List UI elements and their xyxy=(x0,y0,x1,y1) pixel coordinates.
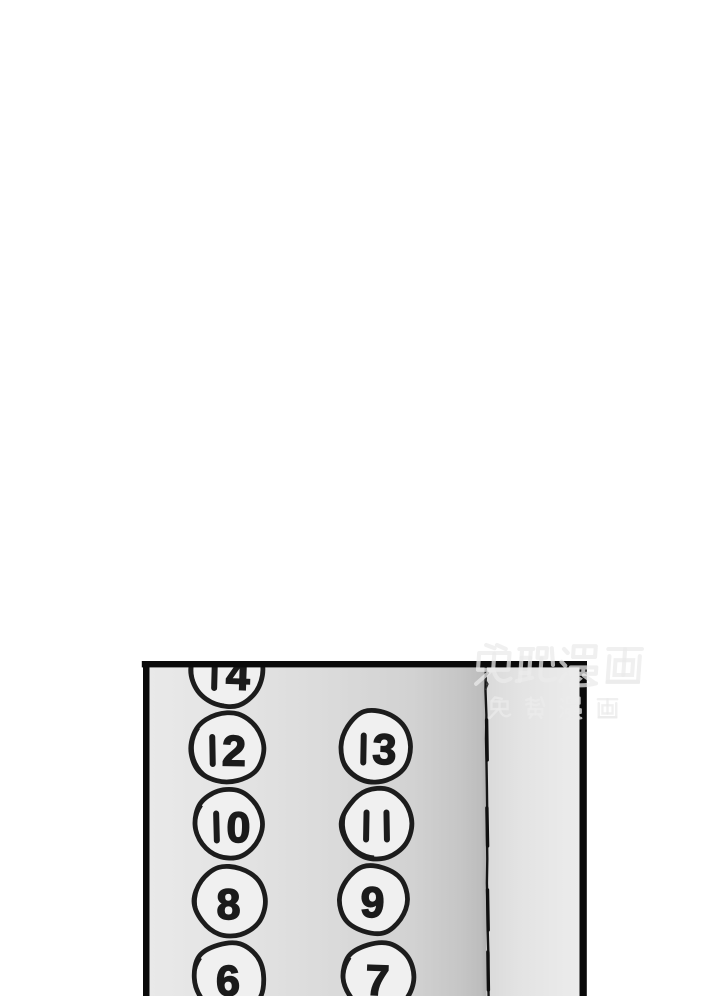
svg-text:3: 3 xyxy=(372,726,398,775)
svg-text:9: 9 xyxy=(360,879,386,928)
svg-text:0: 0 xyxy=(226,804,251,852)
svg-text:8: 8 xyxy=(216,881,241,929)
svg-text:7: 7 xyxy=(365,957,391,996)
svg-text:6: 6 xyxy=(216,957,241,996)
svg-text:2: 2 xyxy=(222,727,247,775)
